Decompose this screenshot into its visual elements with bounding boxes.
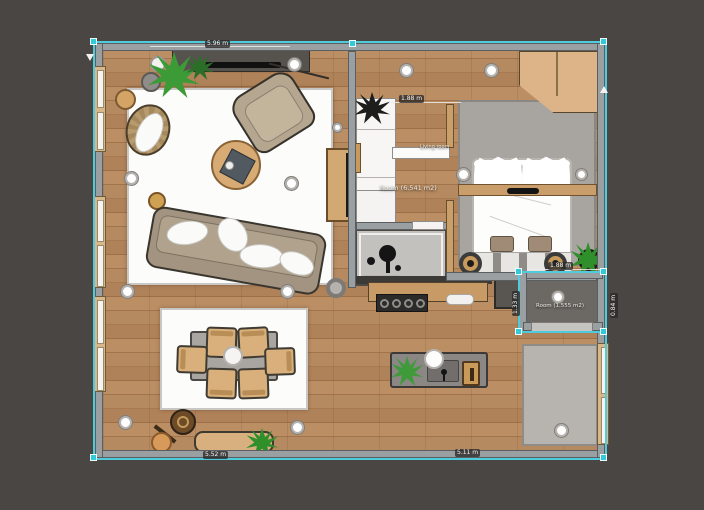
bathroom-door-leaf[interactable]: [412, 221, 444, 230]
dim-label-selected-right: 0.84 m: [610, 293, 618, 318]
selection-handle[interactable]: [349, 40, 356, 47]
burner-icon: [404, 299, 413, 308]
dining-chair[interactable]: [264, 347, 296, 376]
wardrobe-divider: [556, 52, 558, 96]
wardrobe-divider: [357, 177, 395, 178]
window-pane: [97, 245, 104, 287]
faucet-icon: [443, 373, 445, 381]
guitar-body[interactable]: [170, 409, 196, 435]
window-pane: [97, 112, 104, 150]
ceiling-fixture[interactable]: [326, 278, 346, 298]
dim-label-selected-top: 1.88 m: [548, 262, 573, 270]
ceiling-light[interactable]: [285, 177, 298, 190]
headboard-shelf[interactable]: [458, 184, 597, 196]
ceiling-light[interactable]: [288, 58, 301, 71]
stool-center: [467, 260, 474, 267]
selection-handle[interactable]: [600, 268, 607, 275]
selection-handle[interactable]: [90, 38, 97, 45]
dim-label-top: 5.96 m: [205, 40, 230, 48]
ceiling-light[interactable]: [119, 416, 132, 429]
selection-handle[interactable]: [515, 268, 522, 275]
dim-label-hall: 1.88 m: [399, 95, 424, 103]
cutting-board[interactable]: [462, 361, 480, 386]
selected-room-window[interactable]: [531, 322, 593, 332]
coffee-table[interactable]: [211, 140, 261, 190]
cooktop[interactable]: [376, 294, 428, 312]
dimension-arrow-icon: [600, 86, 608, 93]
floorplan-canvas[interactable]: 1.88 m Room (6.541 m2) Living room: [0, 0, 704, 510]
room-label-selected: Room (1.555 m2): [536, 303, 584, 309]
ceiling-light[interactable]: [400, 64, 413, 77]
shower-knob-icon: [367, 257, 375, 265]
sink-drainer[interactable]: [446, 294, 474, 305]
wardrobe-divider: [357, 129, 395, 130]
selection-handle[interactable]: [600, 454, 607, 461]
window-left-3[interactable]: [93, 296, 106, 392]
bed-cushion: [528, 236, 552, 252]
ceiling-light[interactable]: [576, 169, 587, 180]
dining-chair[interactable]: [205, 367, 237, 399]
dining-chair[interactable]: [176, 345, 208, 374]
door-label: Living room: [420, 144, 449, 150]
window-left-1[interactable]: [93, 66, 106, 152]
cup: [225, 161, 234, 170]
window-left-2[interactable]: [93, 196, 106, 288]
window-pane: [97, 200, 104, 242]
side-table[interactable]: [115, 89, 136, 110]
dim-label-bottom-right: 5.11 m: [455, 449, 480, 457]
window-pane: [97, 70, 104, 108]
ceiling-light[interactable]: [281, 285, 294, 298]
knife-icon: [470, 368, 474, 381]
ceiling-light[interactable]: [457, 168, 470, 181]
plate[interactable]: [424, 349, 444, 369]
bed-cushion: [490, 236, 514, 252]
selection-handle[interactable]: [600, 38, 607, 45]
window-pane: [97, 347, 104, 391]
burner-icon: [392, 299, 401, 308]
selection-handle[interactable]: [515, 328, 522, 335]
duvet-fold: [490, 216, 547, 237]
wall-bedroom-upper[interactable]: [446, 104, 454, 148]
selection-handle[interactable]: [600, 328, 607, 335]
ceiling-light[interactable]: [333, 123, 342, 132]
selection-handle[interactable]: [90, 454, 97, 461]
window-pane: [601, 397, 607, 444]
shower-knob-icon: [395, 265, 401, 271]
ceiling-light[interactable]: [552, 291, 564, 303]
guitar-rosette: [177, 416, 189, 428]
hall-cabinet[interactable]: [356, 190, 396, 224]
table-bowl[interactable]: [223, 346, 243, 366]
remote-icon: [507, 188, 539, 194]
ceiling-light[interactable]: [555, 424, 568, 437]
shower-stem-icon: [386, 261, 390, 273]
dim-label-bottom-left: 5.52 m: [203, 451, 228, 459]
selected-room-floor[interactable]: [523, 279, 603, 324]
burner-icon: [416, 299, 425, 308]
dim-label-selected-left: 1.33 m: [512, 291, 520, 316]
wall-bedroom-lower[interactable]: [446, 200, 454, 278]
ceiling-light[interactable]: [291, 421, 304, 434]
ceiling-light[interactable]: [121, 285, 134, 298]
dimension-arrow-icon: [86, 54, 94, 61]
wall-living-hall[interactable]: [348, 51, 356, 288]
window-pane: [601, 347, 607, 394]
room-label-hall: Room (6.541 m2): [380, 184, 437, 192]
wall-bottom[interactable]: [95, 450, 605, 458]
window-right[interactable]: [597, 343, 609, 445]
burner-icon: [380, 299, 389, 308]
window-pane: [97, 300, 104, 344]
ceiling-light[interactable]: [125, 172, 138, 185]
shower-head-icon[interactable]: [379, 245, 396, 262]
ceiling-light[interactable]: [485, 64, 498, 77]
selected-room-wall-top[interactable]: [523, 272, 603, 279]
